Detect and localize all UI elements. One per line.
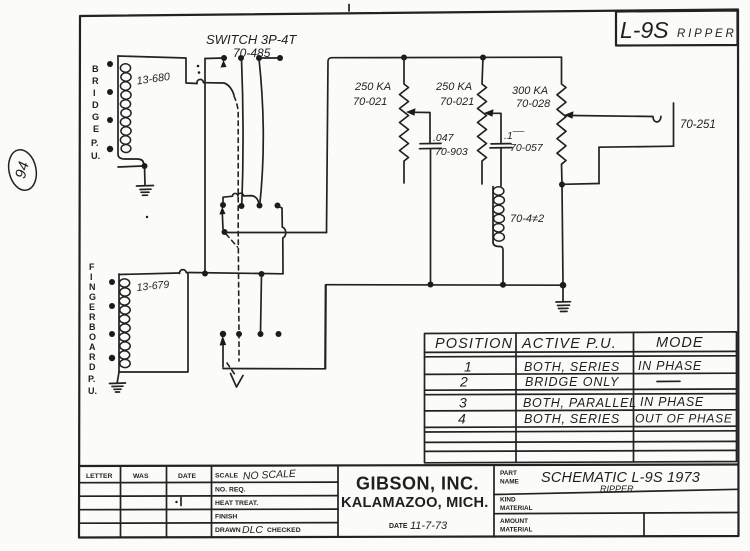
svg-text:G: G xyxy=(89,292,96,302)
svg-text:U.: U. xyxy=(88,386,97,396)
svg-text:D: D xyxy=(92,100,99,110)
svg-text:94: 94 xyxy=(12,160,33,181)
svg-text:B: B xyxy=(92,64,99,74)
svg-text:I: I xyxy=(90,272,93,282)
svg-text:FINISH: FINISH xyxy=(215,514,237,521)
svg-text:O: O xyxy=(89,332,96,342)
svg-text:IN PHASE: IN PHASE xyxy=(640,395,704,409)
svg-text:G: G xyxy=(92,112,99,122)
svg-text:70-028: 70-028 xyxy=(516,98,551,110)
svg-text:NO SCALE: NO SCALE xyxy=(243,468,298,483)
svg-text:NAME: NAME xyxy=(500,479,520,486)
svg-text:F: F xyxy=(89,262,95,272)
svg-text:RIPPER: RIPPER xyxy=(677,28,737,40)
svg-text:BOTH, SERIES: BOTH, SERIES xyxy=(524,360,620,374)
svg-text:13-680: 13-680 xyxy=(136,71,171,88)
svg-text:OUT OF PHASE: OUT OF PHASE xyxy=(635,412,733,426)
svg-text:DATE: DATE xyxy=(389,523,408,530)
svg-text:2: 2 xyxy=(459,374,469,390)
svg-text:SCALE: SCALE xyxy=(215,473,239,480)
svg-text:SWITCH 3P-4T: SWITCH 3P-4T xyxy=(206,32,297,47)
svg-text:MATERIAL: MATERIAL xyxy=(500,526,533,533)
svg-text:LETTER: LETTER xyxy=(86,473,113,480)
svg-text:PART: PART xyxy=(500,470,517,477)
svg-text:WAS: WAS xyxy=(133,473,149,480)
svg-text:IN PHASE: IN PHASE xyxy=(638,359,702,373)
svg-text:KIND: KIND xyxy=(500,497,516,504)
svg-text:B: B xyxy=(89,322,96,332)
svg-text:3: 3 xyxy=(459,395,468,411)
svg-text:1: 1 xyxy=(464,359,473,375)
svg-text:NO. REQ.: NO. REQ. xyxy=(215,487,246,494)
svg-text:A: A xyxy=(89,342,96,352)
svg-text:BOTH, PARALLEL: BOTH, PARALLEL xyxy=(523,396,637,410)
svg-text:.1¯¯: .1¯¯ xyxy=(504,130,525,142)
svg-text:DATE: DATE xyxy=(178,473,196,480)
svg-text:BOTH, SERIES: BOTH, SERIES xyxy=(524,412,620,426)
svg-text:I: I xyxy=(93,88,96,98)
svg-text:RIPPER: RIPPER xyxy=(600,484,634,494)
svg-text:13-679: 13-679 xyxy=(136,279,170,294)
svg-text:KALAMAZOO, MICH.: KALAMAZOO, MICH. xyxy=(341,495,489,511)
svg-text:HEAT TREAT.: HEAT TREAT. xyxy=(215,500,258,507)
svg-text:N: N xyxy=(89,282,96,292)
svg-text:DLC: DLC xyxy=(242,524,263,536)
svg-text:70-4≠2: 70-4≠2 xyxy=(510,213,544,225)
svg-text:DRAWN: DRAWN xyxy=(215,527,241,534)
svg-text:AMOUNT: AMOUNT xyxy=(500,518,528,525)
svg-text:300 KA: 300 KA xyxy=(512,85,548,97)
svg-text:L-9S: L-9S xyxy=(620,17,669,43)
svg-text:70-021: 70-021 xyxy=(440,96,474,108)
svg-text:11-7-73: 11-7-73 xyxy=(410,520,448,532)
svg-text:250 KA: 250 KA xyxy=(354,81,391,93)
svg-text:70-057: 70-057 xyxy=(510,142,544,154)
svg-text:R: R xyxy=(89,312,96,322)
svg-text:MATERIAL: MATERIAL xyxy=(500,505,533,512)
svg-text:.047: .047 xyxy=(433,132,455,144)
svg-text:CHECKED: CHECKED xyxy=(267,527,301,534)
svg-text:E: E xyxy=(93,124,99,134)
svg-text:70-021: 70-021 xyxy=(353,96,387,108)
svg-text:4: 4 xyxy=(458,411,467,427)
svg-text:D: D xyxy=(89,362,96,372)
svg-text:U.: U. xyxy=(91,151,100,161)
svg-text:R: R xyxy=(92,76,99,86)
svg-text:MODE: MODE xyxy=(656,335,704,351)
svg-text:250 KA: 250 KA xyxy=(435,81,472,93)
svg-text:R: R xyxy=(89,352,96,362)
svg-text:BRIDGE ONLY: BRIDGE ONLY xyxy=(525,375,620,389)
svg-text:ACTIVE P.U.: ACTIVE P.U. xyxy=(521,336,617,352)
svg-text:70-251: 70-251 xyxy=(680,119,716,131)
svg-text:70-903: 70-903 xyxy=(435,146,468,158)
svg-text:P.: P. xyxy=(88,374,95,384)
svg-text:POSITION: POSITION xyxy=(435,336,513,352)
svg-text:E: E xyxy=(89,302,95,312)
svg-text:P.: P. xyxy=(91,138,99,148)
svg-text:GIBSON, INC.: GIBSON, INC. xyxy=(356,474,479,494)
